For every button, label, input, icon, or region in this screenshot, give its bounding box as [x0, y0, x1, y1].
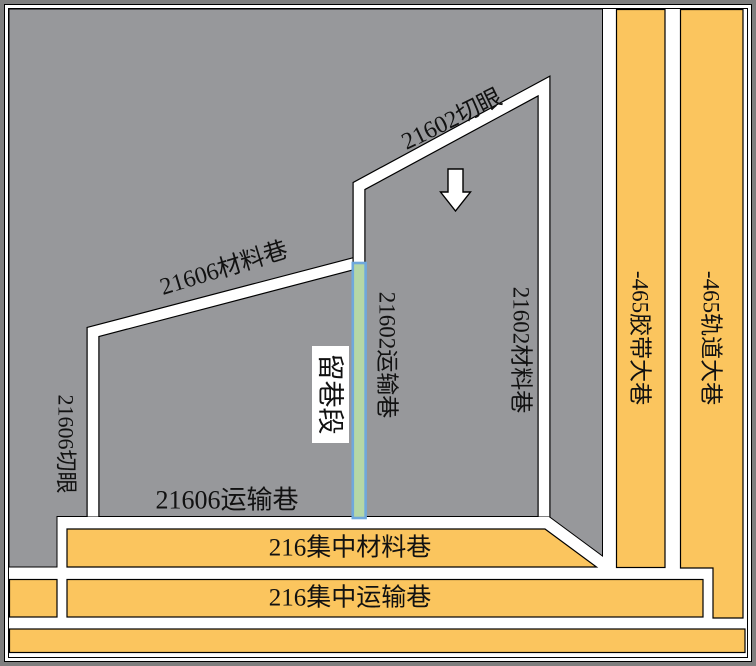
label-21602-material: 21602材料巷: [509, 287, 534, 414]
mine-roadway-layout-diagram: 21602切眼 21606材料巷 21602运输巷 21602材料巷 21606…: [0, 0, 756, 666]
bottom-roadway-strip: [10, 629, 746, 653]
label-465-track-main: -465轨道大巷: [699, 271, 724, 405]
retained-section-strip: [353, 263, 366, 518]
central-transport-left-block: [10, 580, 58, 618]
label-216-central-transport: 216集中运输巷: [269, 584, 432, 612]
label-465-belt-main: -465胶带大巷: [628, 271, 653, 405]
label-21606-cut: 21606切眼: [54, 394, 79, 493]
label-21602-transport: 21602运输巷: [375, 292, 400, 419]
label-21606-transport: 21606运输巷: [155, 486, 298, 515]
label-216-central-material: 216集中材料巷: [269, 534, 432, 562]
label-retained-section: 留巷段: [315, 354, 345, 435]
